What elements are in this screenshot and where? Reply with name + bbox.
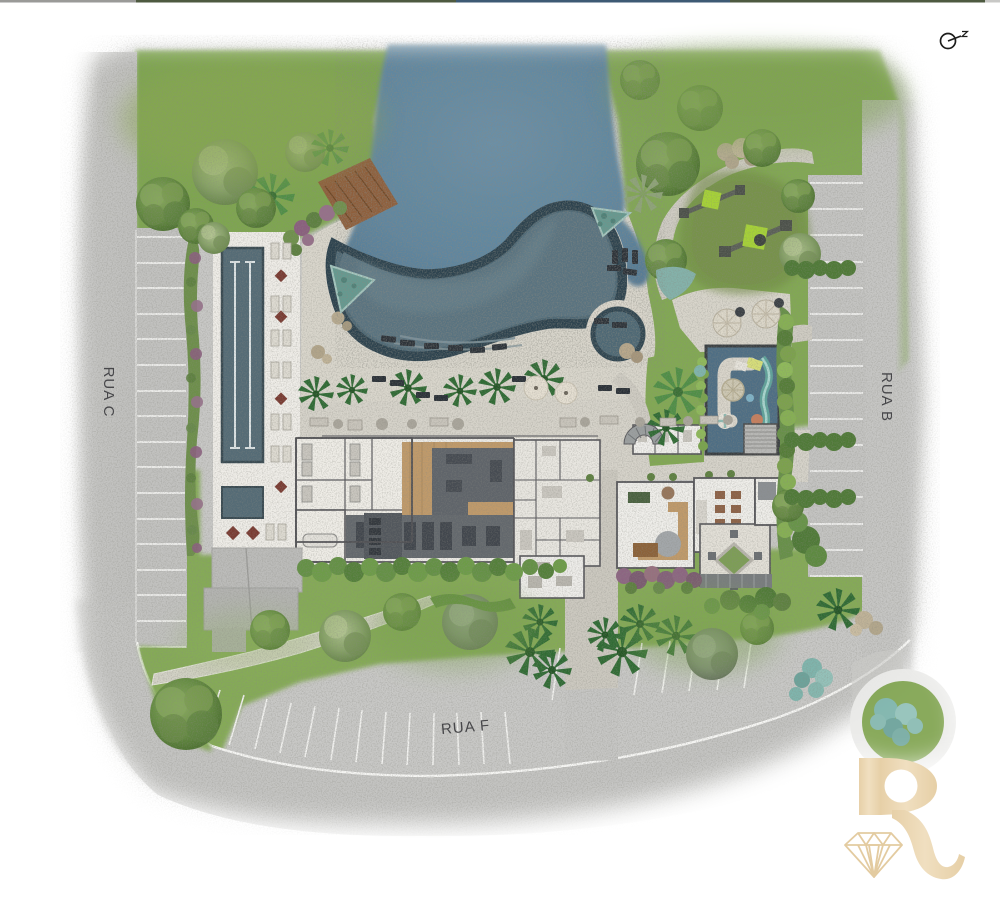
svg-text:RUA B: RUA B [878,372,895,422]
svg-text:RUA C: RUA C [100,367,117,418]
